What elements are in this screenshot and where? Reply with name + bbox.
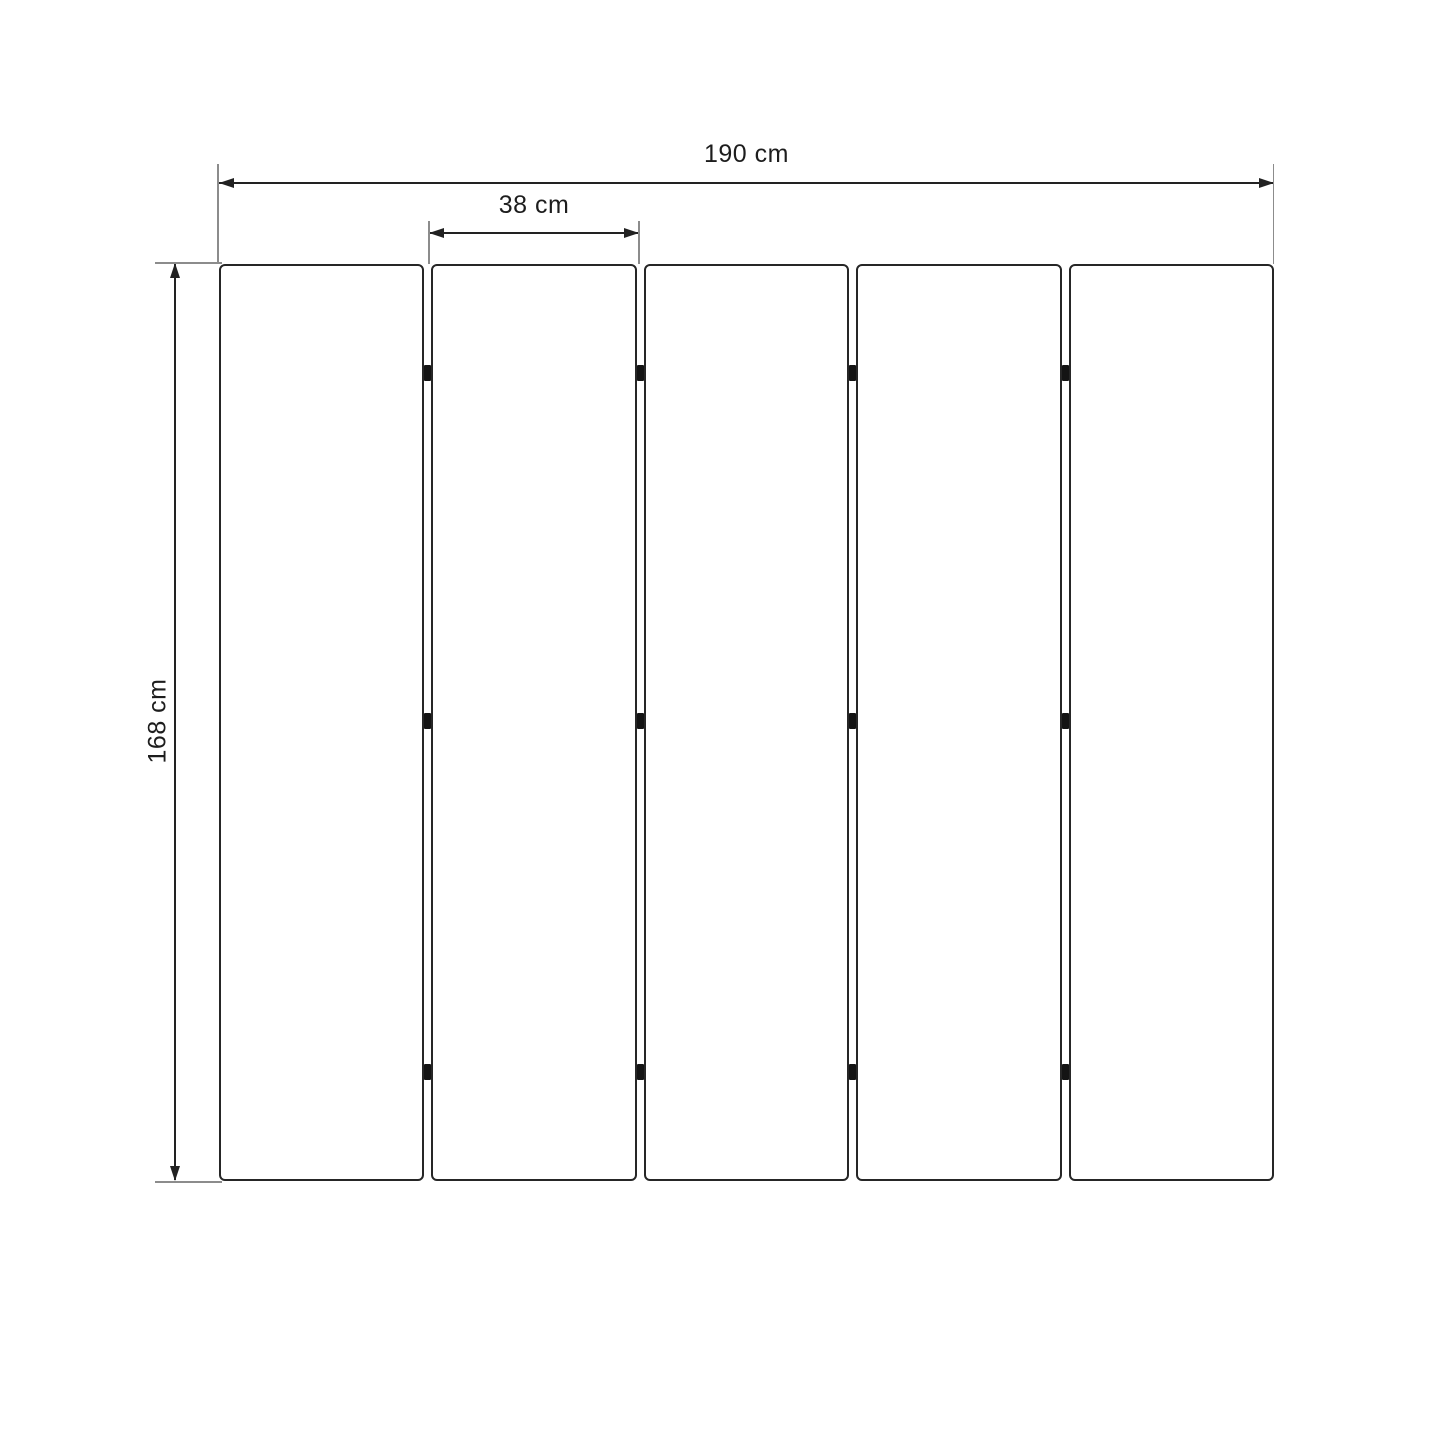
panel (856, 264, 1061, 1181)
panel-width-label: 38 cm (429, 192, 639, 220)
arrowhead-left-icon (219, 178, 234, 188)
arrowhead-up-icon (170, 263, 180, 278)
panel (1069, 264, 1274, 1181)
panel (219, 264, 424, 1181)
arrowhead-down-icon (170, 1166, 180, 1181)
height-label: 168 cm (144, 679, 172, 764)
arrowhead-right-icon (624, 228, 639, 238)
panel (644, 264, 849, 1181)
arrowhead-left-icon (429, 228, 444, 238)
folding-screen-dimension-diagram: 190 cm 38 cm 168 cm (0, 0, 1445, 1445)
extension-line-left (217, 164, 219, 264)
extension-line-top (155, 262, 222, 264)
extension-line-bottom (155, 1181, 222, 1183)
total-width-label: 190 cm (219, 141, 1274, 169)
height-dimension-line (174, 264, 177, 1180)
panel (431, 264, 636, 1181)
panel-row (219, 264, 1274, 1181)
total-width-dimension-line (219, 182, 1274, 185)
panel-width-dimension-line (429, 232, 639, 235)
extension-line-right (1273, 164, 1275, 264)
extension-line-right (638, 221, 640, 264)
extension-line-left (428, 221, 430, 264)
